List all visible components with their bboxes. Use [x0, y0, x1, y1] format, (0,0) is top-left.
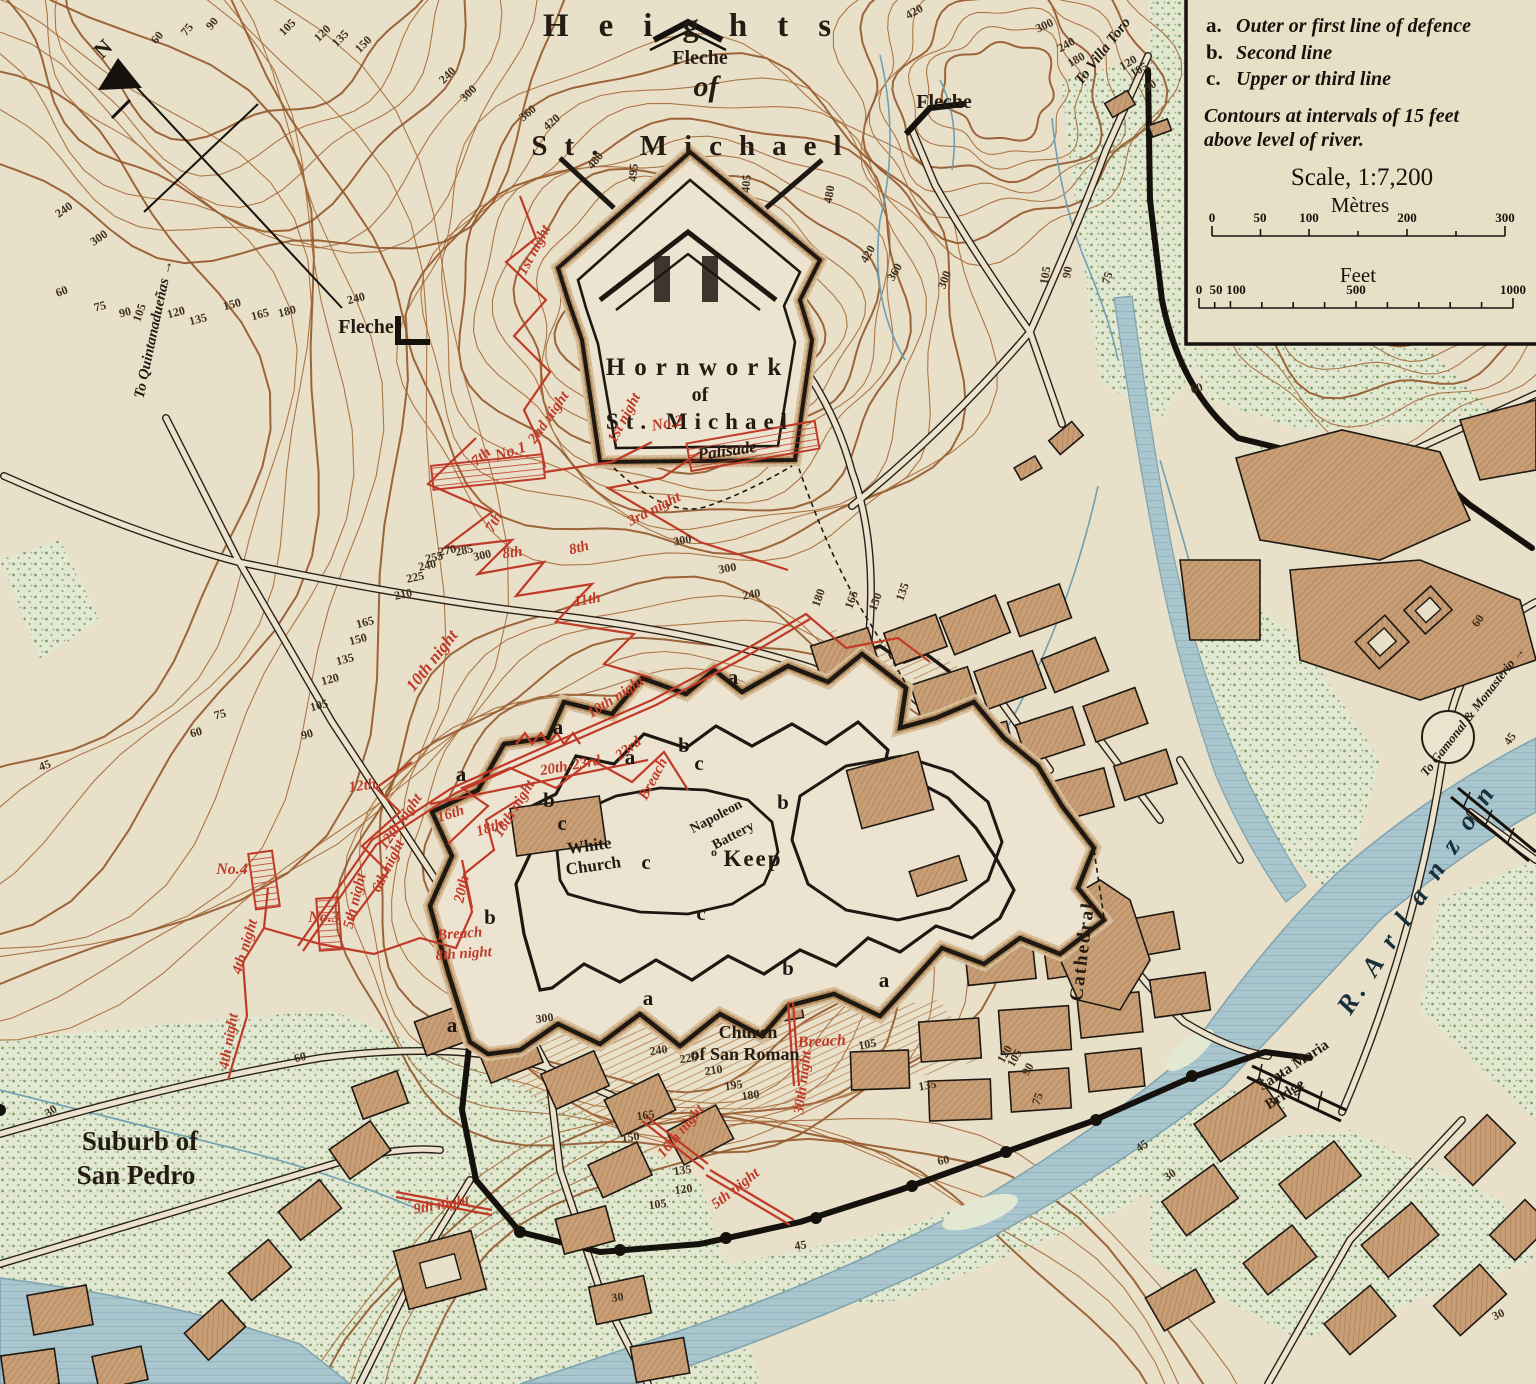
legend-key-c: c. [1206, 66, 1221, 90]
label-breach: Breach [796, 1032, 846, 1052]
label-120: 120 [674, 1181, 694, 1197]
label-heights: Heights [543, 8, 861, 44]
label-300: 300 [535, 1010, 555, 1026]
label-no-4: No.4 [215, 861, 248, 878]
metres-tick-200: 200 [1397, 210, 1417, 225]
metres-tick-300: 300 [1495, 210, 1515, 225]
legend-item-c: Upper or third line [1236, 68, 1391, 90]
label-135: 135 [673, 1162, 693, 1178]
label-60: 60 [936, 1152, 950, 1168]
legend-metres-label: Mètres [1331, 193, 1389, 217]
legend-item-b: Second line [1236, 42, 1332, 64]
label-fleche: Fleche [672, 47, 728, 69]
label-b: b [678, 733, 690, 757]
label-c: c [694, 751, 703, 775]
map-canvas: HeightsofSt. MichaelFlecheFlecheFlecheHo… [0, 0, 1536, 1384]
legend-scale-title: Scale, 1:7,200 [1291, 164, 1433, 191]
label-405: 405 [738, 174, 754, 193]
label-b: b [777, 790, 789, 814]
metres-tick-0: 0 [1209, 210, 1216, 225]
label-a: a [643, 986, 654, 1010]
label-b: b [484, 905, 496, 929]
label-c: c [696, 901, 705, 925]
label-b: b [543, 788, 555, 812]
metres-tick-100: 100 [1299, 210, 1319, 225]
label-45: 45 [794, 1237, 808, 1253]
label-165: 165 [636, 1107, 656, 1123]
label-a: a [625, 745, 636, 769]
label-fleche: Fleche [916, 91, 972, 113]
label-a: a [447, 1013, 458, 1037]
feet-tick-0: 0 [1196, 282, 1203, 297]
feet-tick-50: 50 [1210, 282, 1223, 297]
label-suburb-of: Suburb of [82, 1126, 199, 1156]
label-st-michael: St. Michael [531, 130, 858, 162]
legend-key-b: b. [1206, 40, 1223, 64]
label-495: 495 [625, 163, 641, 182]
legend-contour-note-2: above level of river. [1204, 129, 1364, 151]
legend-item-a: Outer or first line of defence [1236, 15, 1471, 37]
legend-box: a. Outer or first line of defence b. Sec… [1186, 0, 1536, 344]
label-of: of [694, 70, 722, 103]
label-210: 210 [704, 1062, 724, 1078]
feet-tick-500: 500 [1346, 282, 1366, 297]
label-b: b [782, 956, 794, 980]
label-240: 240 [649, 1042, 669, 1058]
label-church: Church [719, 1022, 778, 1042]
feet-tick-100: 100 [1226, 282, 1246, 297]
legend-contour-note-1: Contours at intervals of 15 feet [1204, 105, 1460, 127]
label-fleche: Fleche [338, 316, 394, 338]
legend-key-a: a. [1206, 13, 1222, 37]
label-o: o [711, 845, 717, 859]
label-105: 105 [648, 1196, 668, 1212]
label-8th: 8th [501, 544, 523, 563]
label-a: a [879, 968, 890, 992]
label-a: a [553, 715, 564, 739]
label-225: 225 [679, 1050, 699, 1066]
label-90: 90 [1059, 265, 1075, 279]
label-c: c [641, 850, 650, 874]
label-180: 180 [741, 1087, 761, 1103]
metres-tick-50: 50 [1254, 210, 1267, 225]
label-keep: Keep [723, 846, 782, 871]
label-c: c [557, 811, 566, 835]
siege-map-of-burgos: HeightsofSt. MichaelFlecheFlecheFlecheHo… [0, 0, 1536, 1384]
feet-tick-1000: 1000 [1500, 282, 1526, 297]
label-a: a [728, 665, 739, 689]
label-of: of [692, 384, 709, 406]
label-hornwork: Hornwork [606, 354, 791, 381]
label-san-pedro: San Pedro [77, 1160, 196, 1190]
label-breach: Breach [436, 924, 483, 943]
label-no-3: No.3 [307, 909, 340, 926]
label-30: 30 [611, 1289, 625, 1305]
label-of-san-roman: of San Roman [690, 1044, 799, 1064]
label-a: a [456, 762, 467, 786]
label-150: 150 [621, 1129, 641, 1145]
